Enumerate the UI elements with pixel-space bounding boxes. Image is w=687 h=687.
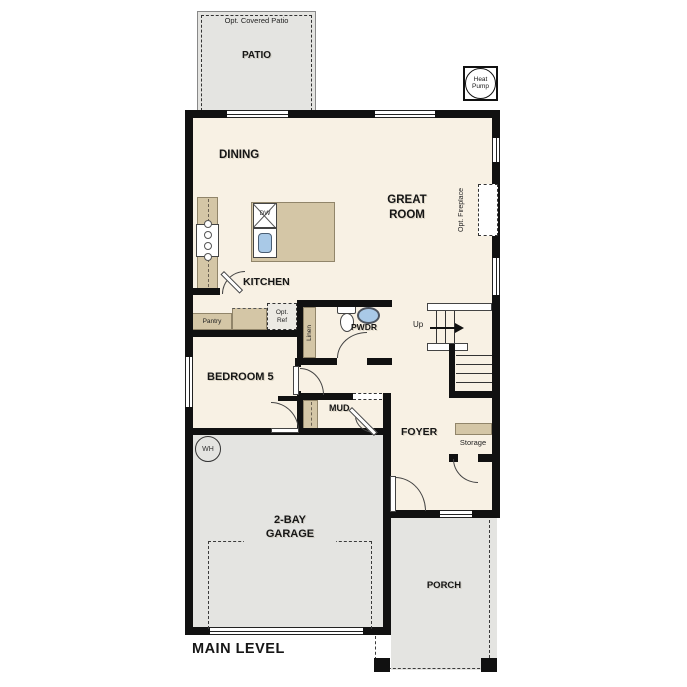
great-room-label-line1: GREAT [375, 193, 439, 208]
stair-landing-mid [427, 343, 468, 351]
floor-plan: Opt. Covered Patio PATIO Heat Pump Pantr… [0, 0, 687, 687]
porch-post [481, 658, 497, 672]
great-room-label: GREAT ROOM [375, 193, 439, 223]
great-room-right-window [492, 138, 500, 162]
great-room-label-line2: ROOM [375, 208, 439, 223]
stairs-up-label: Up [413, 320, 423, 329]
wall-garage-bottom [185, 627, 210, 635]
stair-tread [456, 355, 492, 356]
garage-bay-dash-left [208, 541, 209, 629]
porch-post [374, 658, 390, 672]
stairs-up-arrowhead [455, 323, 464, 333]
heat-pump-symbol: Heat Pump [463, 66, 498, 101]
stair-tread [456, 364, 492, 365]
garage-label-line2: GARAGE [244, 528, 336, 542]
garage-label-line1: 2-BAY [244, 514, 336, 528]
powder-label: PWDR [351, 322, 377, 332]
linen-label: Linen [306, 325, 313, 341]
mud-optional-opening [353, 393, 382, 400]
kitchen-label: KITCHEN [243, 276, 290, 288]
stove-burner [204, 231, 212, 239]
garage-bay-dash-right [371, 541, 372, 629]
dining-label: DINING [219, 149, 259, 161]
storage-shelf [455, 423, 492, 435]
porch-dash-right [489, 520, 490, 668]
patio-dashed-outline [201, 15, 312, 111]
dishwasher: DW [253, 203, 277, 228]
wall-storage-stub [478, 454, 500, 462]
opt-fireplace-label: Opt. Fireplace [458, 180, 472, 240]
wall-under-linen [297, 358, 330, 365]
patio-sliding-door [227, 110, 288, 118]
bedroom5-window [185, 357, 193, 407]
porch-dash-left [375, 636, 376, 660]
wall-stairs-bottom [449, 391, 500, 398]
entry-sidelite [440, 510, 472, 518]
storage-label: Storage [452, 438, 494, 447]
bedroom5-door [293, 366, 299, 395]
optional-fireplace [478, 184, 498, 236]
water-heater: WH [195, 436, 221, 462]
opt-covered-patio-label: Opt. Covered Patio [203, 16, 310, 25]
foyer-label: FOYER [401, 426, 437, 438]
stove [196, 224, 219, 257]
porch-floor [391, 518, 497, 670]
opt-ref-label-2: Ref [277, 317, 287, 325]
great-room-top-window [375, 110, 435, 118]
water-heater-label: WH [202, 446, 214, 453]
stair-tread [456, 382, 492, 383]
wall-kitchen-stub [192, 288, 220, 295]
island-sink [258, 233, 272, 253]
patio-label: PATIO [203, 50, 310, 61]
porch-dash-bottom [378, 668, 490, 669]
heat-pump-label-2: Pump [472, 84, 489, 91]
opt-ref-label-1: Opt. [276, 309, 288, 317]
wall-powder-bottom [330, 358, 337, 365]
wall-pantry-bedroom [185, 330, 303, 337]
optional-refrigerator: Opt. Ref [267, 303, 297, 330]
stove-burner [204, 220, 212, 228]
main-level-title: MAIN LEVEL [192, 641, 285, 657]
bedroom5-closet-door [271, 428, 299, 433]
garage-door-opening [210, 627, 363, 635]
island-sink-cabinet [253, 228, 277, 258]
great-room-right-window-2 [492, 258, 500, 295]
wall-closet-stub [278, 396, 300, 401]
wall-powder-top [297, 300, 392, 307]
stair-tread [456, 373, 492, 374]
bench-centerline [311, 402, 312, 431]
linen-closet: Linen [303, 307, 316, 358]
stairs-up-arrow [430, 327, 456, 329]
bedroom5-label: BEDROOM 5 [207, 371, 274, 383]
wall-powder-bottom [367, 358, 392, 365]
patio-area [197, 11, 316, 112]
pantry-label: Pantry [192, 318, 232, 325]
stove-burner [204, 242, 212, 250]
garage-label: 2-BAY GARAGE [244, 514, 336, 542]
heat-pump-circle: Heat Pump [465, 68, 496, 99]
wall-powder-left [297, 300, 303, 365]
wall-stairs-side [449, 344, 455, 398]
porch-label: PORCH [391, 580, 497, 591]
kitchen-lower-counter [232, 308, 267, 330]
wall-garage-bottom [363, 627, 390, 635]
mud-label: MUD [329, 403, 350, 413]
stove-burner [204, 253, 212, 261]
stair-landing-top [427, 303, 492, 311]
dishwasher-label: DW [254, 210, 276, 217]
